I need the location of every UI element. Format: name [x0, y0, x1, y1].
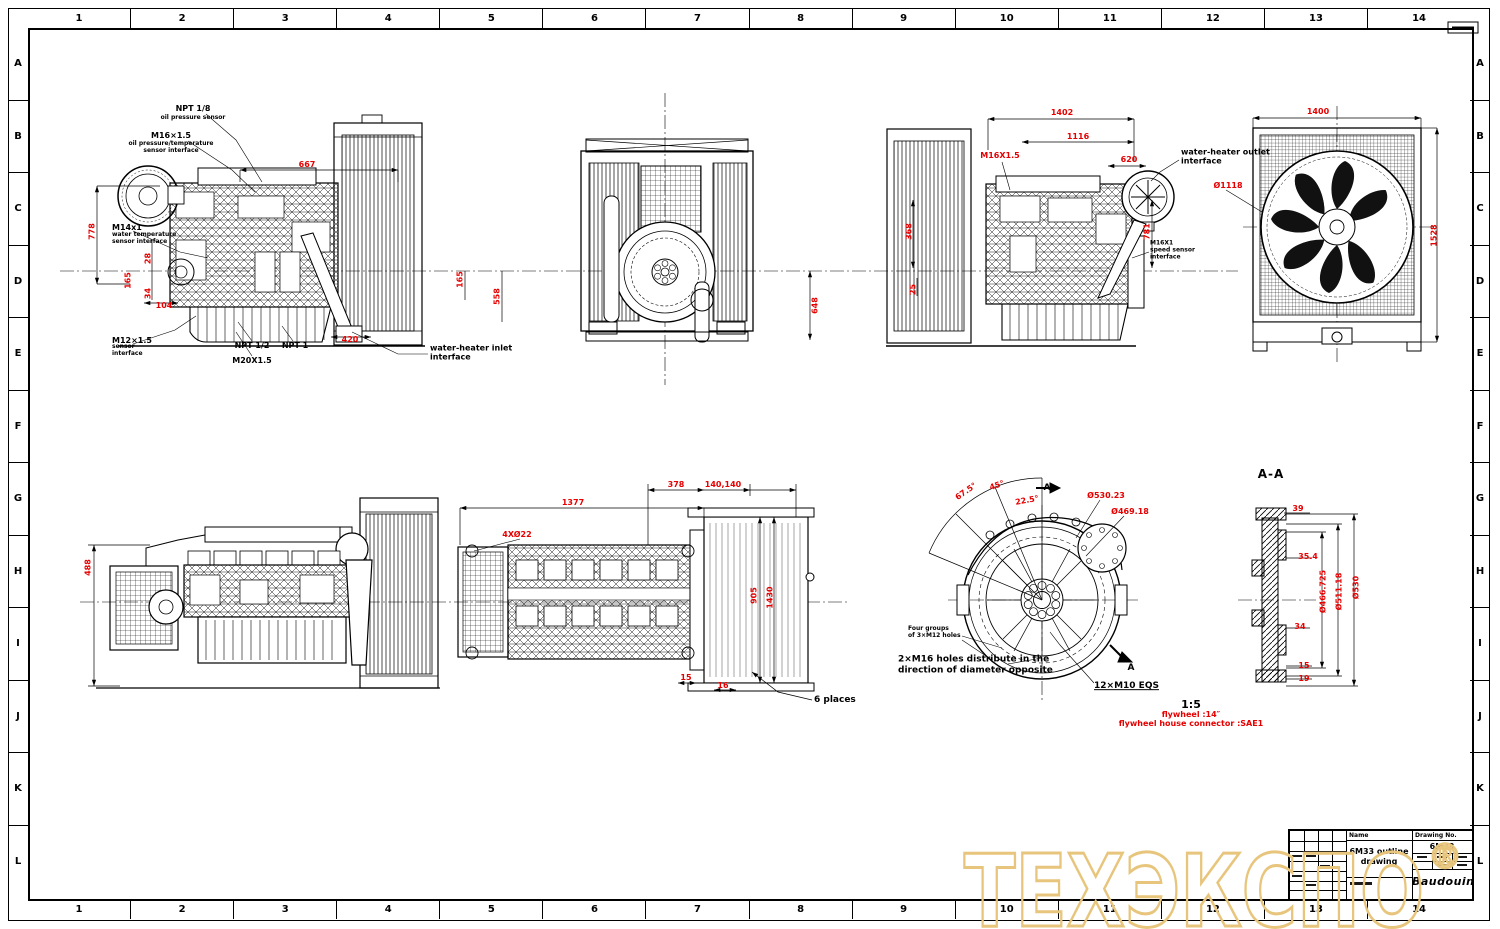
dimension-text: 620: [1121, 155, 1138, 164]
grid-row-G: G: [8, 463, 28, 536]
grid-col-9: 9: [853, 899, 956, 919]
grid-col-4: 4: [337, 899, 440, 919]
callout-m16x1: M16X1 speed sensor interface: [1150, 239, 1195, 260]
grid-col-1: 1: [28, 8, 131, 28]
grid-row-J: J: [8, 681, 28, 754]
dimension-text: 648: [810, 297, 819, 314]
title-drawingno-label: Drawing No.: [1415, 832, 1457, 839]
title-name-value: 6M33 outline drawing: [1346, 847, 1412, 867]
dimension-text: 368: [904, 223, 913, 240]
dimension-text: 905: [749, 587, 758, 604]
grid-col-3: 3: [234, 899, 337, 919]
callout-water-heater-inlet: water-heater inlet interface: [430, 344, 512, 363]
grid-col-9: 9: [853, 8, 956, 28]
grid-row-B: B: [1470, 101, 1490, 174]
dimension-text: 34: [143, 288, 152, 299]
dimension-text: 1430: [765, 586, 774, 608]
callout-water-temp: water temperature sensor interface: [112, 231, 176, 245]
dimension-text: 1402: [1051, 108, 1073, 117]
dimension-text: 1400: [1307, 107, 1329, 116]
brand-logo-text: Baudouin: [1412, 875, 1472, 888]
dimension-text: 165: [455, 271, 464, 288]
grid-col-7: 7: [646, 899, 749, 919]
callout-m16x15: M16×1.5: [151, 131, 191, 140]
grid-col-4: 4: [337, 8, 440, 28]
grid-row-G: G: [1470, 463, 1490, 536]
dimension-text: 781: [1142, 223, 1151, 240]
dimension-text: 4XØ22: [502, 530, 531, 539]
dimension-text: 104: [156, 301, 173, 310]
section-title-aa: A-A: [1258, 467, 1285, 481]
grid-ruler-right: ABCDEFGHIJKL: [1470, 28, 1490, 897]
grid-row-C: C: [1470, 173, 1490, 246]
grid-row-E: E: [1470, 318, 1490, 391]
grid-ruler-bottom: 1234567891011121314: [28, 899, 1470, 919]
grid-col-6: 6: [543, 899, 646, 919]
grid-col-6: 6: [543, 8, 646, 28]
dimension-text: 15: [680, 673, 691, 682]
grid-row-H: H: [8, 536, 28, 609]
dimension-text: 165: [123, 272, 132, 289]
dimension-text: 558: [492, 288, 501, 305]
grid-col-14: 14: [1368, 899, 1470, 919]
grid-ruler-top: 1234567891011121314: [28, 8, 1470, 28]
note-6-places: 6 places: [814, 695, 856, 706]
grid-row-F: F: [8, 391, 28, 464]
grid-row-A: A: [1470, 28, 1490, 101]
grid-col-12: 12: [1162, 8, 1265, 28]
dimension-text: 25: [908, 284, 917, 295]
dimension-text: 1116: [1067, 132, 1089, 141]
grid-row-J: J: [1470, 681, 1490, 754]
grid-ruler-left: ABCDEFGHIJKL: [8, 28, 28, 897]
grid-col-10: 10: [956, 8, 1059, 28]
grid-row-C: C: [8, 173, 28, 246]
callout-oil-press-temp: oil pressure/temperature sensor interfac…: [128, 140, 213, 154]
grid-row-K: K: [8, 753, 28, 826]
grid-row-D: D: [1470, 246, 1490, 319]
grid-row-B: B: [8, 101, 28, 174]
grid-col-13: 13: [1265, 899, 1368, 919]
dimension-text: 35.4: [1298, 552, 1318, 561]
dimension-text: 488: [83, 559, 92, 576]
dimension-text: 19: [1298, 674, 1309, 683]
grid-col-12: 12: [1162, 899, 1265, 919]
dimension-text: 39: [1292, 504, 1303, 513]
dimension-text: Ø530: [1351, 576, 1360, 600]
note-12xm10-eqs: 12×M10 EQS: [1094, 681, 1159, 692]
dimension-text: Ø530.23: [1087, 491, 1125, 500]
section-arrow-a-top: A: [1044, 483, 1051, 494]
dimension-text: Ø466.725: [1318, 570, 1327, 613]
callout-m20x15: M20X1.5: [232, 356, 271, 365]
dimension-text: 378: [668, 480, 685, 489]
grid-row-A: A: [8, 28, 28, 101]
grid-col-1: 1: [28, 899, 131, 919]
dimension-text: 34: [1294, 622, 1305, 631]
grid-row-E: E: [8, 318, 28, 391]
drawing-sheet: 1234567891011121314 1234567891011121314 …: [0, 0, 1500, 929]
callout-npt-1-2: NPT 1/2: [235, 341, 270, 350]
grid-col-5: 5: [440, 8, 543, 28]
dimension-text: M16X1.5: [980, 151, 1019, 160]
grid-col-5: 5: [440, 899, 543, 919]
dimension-text: 140,140: [705, 480, 741, 489]
callout-oil-pressure-sensor: oil pressure sensor: [161, 114, 226, 121]
dimension-text: 420: [342, 335, 359, 344]
dimension-text: Ø469.18: [1111, 507, 1149, 516]
grid-col-11: 11: [1059, 8, 1162, 28]
grid-col-7: 7: [646, 8, 749, 28]
title-drawingno-value: 6M33: [1412, 842, 1472, 851]
dimension-text: 778: [87, 223, 96, 240]
note-m16-holes: 2×M16 holes distribute in the direction …: [898, 654, 1053, 675]
dimension-text: 28: [143, 253, 152, 264]
dimension-text: Ø511.18: [1334, 573, 1343, 611]
callout-npt-1: NPT 1: [282, 341, 308, 350]
grid-col-11: 11: [1059, 899, 1162, 919]
grid-row-K: K: [1470, 753, 1490, 826]
grid-row-I: I: [8, 608, 28, 681]
title-name-label: Name: [1349, 832, 1368, 839]
dimension-text: 667: [299, 160, 316, 169]
grid-col-8: 8: [750, 8, 853, 28]
grid-row-H: H: [1470, 536, 1490, 609]
grid-col-3: 3: [234, 8, 337, 28]
grid-col-2: 2: [131, 899, 234, 919]
grid-col-14: 14: [1368, 8, 1470, 28]
callout-m12-sub: sensor interface: [112, 343, 143, 357]
grid-row-D: D: [8, 246, 28, 319]
callout-npt-1-8: NPT 1/8: [176, 104, 211, 113]
grid-row-L: L: [8, 826, 28, 898]
grid-col-8: 8: [750, 899, 853, 919]
grid-col-13: 13: [1265, 8, 1368, 28]
dimension-text: 16: [717, 681, 728, 690]
dimension-text: Ø1118: [1213, 181, 1242, 190]
grid-col-10: 10: [956, 899, 1059, 919]
dimension-text: 1377: [562, 498, 584, 507]
title-block: Name 6M33 outline drawing Drawing No. 6M…: [1288, 829, 1472, 899]
grid-row-F: F: [1470, 391, 1490, 464]
callout-four-groups: Four groups of 3×M12 holes: [908, 625, 961, 639]
grid-row-I: I: [1470, 608, 1490, 681]
dimension-text: 15: [1298, 661, 1309, 670]
dimension-text: 1528: [1429, 224, 1438, 246]
dimension-text: flywheel house connector :SAE1: [1119, 719, 1264, 728]
grid-col-2: 2: [131, 8, 234, 28]
section-arrow-a-bottom: A: [1128, 663, 1135, 674]
callout-water-heater-outlet: water-heater outlet interface: [1181, 148, 1270, 167]
